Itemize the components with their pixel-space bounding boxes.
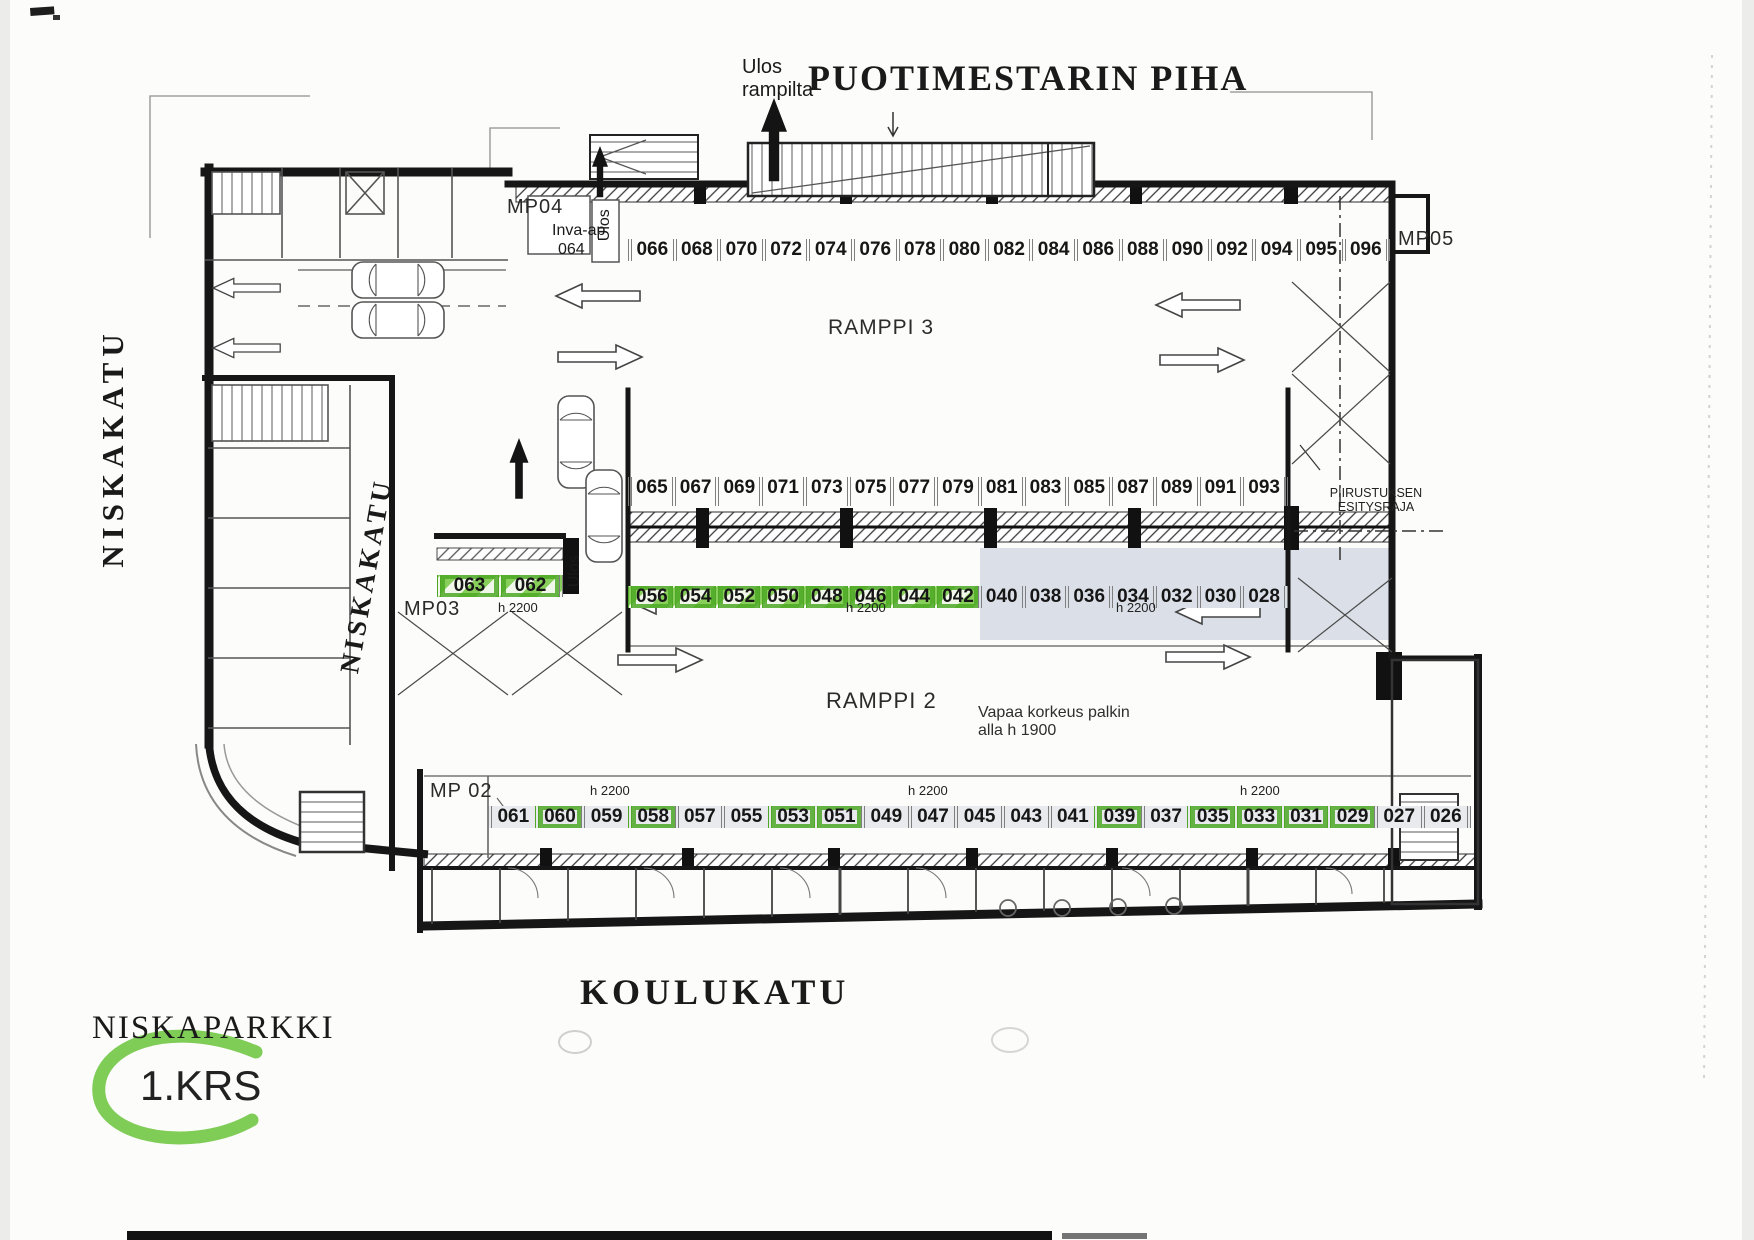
- parking-spot-072: 072: [762, 239, 807, 261]
- parking-spot-number: 055: [731, 806, 763, 828]
- parking-spot-051: 051: [814, 806, 861, 828]
- parking-spot-number: 071: [767, 477, 799, 499]
- parking-spot-number: 082: [993, 239, 1025, 261]
- parking-spot-number: 068: [681, 239, 713, 261]
- parking-floor-plan: PUOTIMESTARIN PIHA Ulos rampilta NISKAKA…: [0, 0, 1754, 1240]
- parking-spot-054: 054: [672, 586, 716, 608]
- height-note-6: h 2200: [1240, 784, 1280, 799]
- ulos-mid-label: Ulos: [566, 548, 584, 594]
- parking-spot-number: 094: [1261, 239, 1293, 261]
- parking-spot-number: 087: [1117, 477, 1149, 499]
- parking-spot-085: 085: [1065, 477, 1109, 506]
- parking-spot-077: 077: [890, 477, 934, 506]
- parking-spot-number: 069: [723, 477, 755, 499]
- parking-spot-074: 074: [806, 239, 851, 261]
- clearance-note-line2: alla h 1900: [978, 722, 1130, 740]
- street-bottom: KOULUKATU: [580, 972, 849, 1013]
- parking-row-bottom: 0610600590580570550530510490470450430410…: [488, 776, 1471, 858]
- parking-spot-061: 061: [488, 806, 535, 828]
- parking-spot-063: 063: [437, 575, 498, 597]
- parking-spot-number: 047: [917, 806, 949, 828]
- parking-spot-number: 081: [986, 477, 1018, 499]
- parking-spot-041: 041: [1048, 806, 1095, 828]
- parking-spot-number: 057: [684, 806, 716, 828]
- parking-spot-067: 067: [672, 477, 716, 506]
- parking-spot-number: 085: [1073, 477, 1105, 499]
- height-note-3: h 2200: [1116, 601, 1156, 616]
- parking-spot-030: 030: [1197, 586, 1241, 608]
- parking-spot-number: 035: [1197, 806, 1229, 828]
- parking-spot-075: 075: [847, 477, 891, 506]
- boundary-note-line1: PIIRUSTUKSEN: [1302, 486, 1450, 500]
- parking-spot-number: 077: [898, 477, 930, 499]
- parking-spot-number: 095: [1305, 239, 1337, 261]
- parking-spot-076: 076: [851, 239, 896, 261]
- parking-spot-029: 029: [1327, 806, 1374, 828]
- parking-spot-number: 031: [1290, 806, 1322, 828]
- parking-spot-049: 049: [861, 806, 908, 828]
- parking-spot-044: 044: [890, 586, 934, 608]
- parking-spot-066: 066: [628, 239, 673, 261]
- parking-spot-number: 092: [1216, 239, 1248, 261]
- parking-spot-095: 095: [1297, 239, 1342, 261]
- parking-spot-070: 070: [717, 239, 762, 261]
- parking-spot-number: 041: [1057, 806, 1089, 828]
- street-left: NISKAKATU: [95, 298, 131, 598]
- parking-spot-031: 031: [1281, 806, 1328, 828]
- parking-spot-number: 048: [811, 586, 843, 608]
- boundary-note: PIIRUSTUKSEN ESITYSRAJA: [1302, 486, 1450, 515]
- parking-spot-071: 071: [759, 477, 803, 506]
- parking-spot-026: 026: [1421, 806, 1472, 828]
- logo-name: NISKAPARKKI: [92, 1010, 335, 1048]
- parking-spot-number: 073: [811, 477, 843, 499]
- parking-spot-059: 059: [581, 806, 628, 828]
- parking-spot-058: 058: [628, 806, 675, 828]
- logo-floor: 1.KRS: [140, 1062, 261, 1110]
- parking-spot-027: 027: [1374, 806, 1421, 828]
- entry-mp02: MP 02: [430, 780, 492, 803]
- parking-spot-094: 094: [1252, 239, 1297, 261]
- parking-row-middle: 0650670690710730750770790810830850870890…: [628, 394, 1288, 506]
- parking-spot-number: 033: [1243, 806, 1275, 828]
- parking-spot-073: 073: [803, 477, 847, 506]
- parking-spot-number: 076: [859, 239, 891, 261]
- parking-spot-number: 037: [1150, 806, 1182, 828]
- parking-spot-number: 063: [454, 575, 486, 597]
- parking-spot-057: 057: [675, 806, 722, 828]
- parking-spot-037: 037: [1141, 806, 1188, 828]
- parking-spot-060: 060: [535, 806, 582, 828]
- parking-spot-096: 096: [1342, 239, 1391, 261]
- parking-spot-069: 069: [715, 477, 759, 506]
- parking-spot-number: 083: [1030, 477, 1062, 499]
- parking-spot-number: 044: [898, 586, 930, 608]
- parking-spot-035: 035: [1187, 806, 1234, 828]
- parking-spot-028: 028: [1240, 586, 1288, 608]
- ulos-top-label: Ulos: [596, 203, 614, 247]
- parking-spot-088: 088: [1119, 239, 1164, 261]
- parking-spot-042: 042: [934, 586, 978, 608]
- parking-spot-083: 083: [1022, 477, 1066, 506]
- parking-spot-number: 038: [1030, 586, 1062, 608]
- parking-spot-number: 072: [770, 239, 802, 261]
- clearance-note: Vapaa korkeus palkin alla h 1900: [978, 704, 1130, 741]
- parking-spot-065: 065: [628, 477, 672, 506]
- parking-spot-045: 045: [954, 806, 1001, 828]
- parking-spot-number: 078: [904, 239, 936, 261]
- parking-spot-number: 067: [680, 477, 712, 499]
- exit-ramp-note: Ulos rampilta: [742, 56, 813, 102]
- parking-spot-050: 050: [759, 586, 803, 608]
- parking-spot-082: 082: [985, 239, 1030, 261]
- parking-spot-number: 084: [1038, 239, 1070, 261]
- parking-spot-038: 038: [1022, 586, 1066, 608]
- parking-spot-number: 074: [815, 239, 847, 261]
- parking-spot-047: 047: [908, 806, 955, 828]
- parking-spot-number: 060: [544, 806, 576, 828]
- parking-row-top: 0660680700720740760780800820840860880900…: [628, 202, 1390, 298]
- exit-ramp-note-line1: Ulos: [742, 56, 813, 79]
- parking-spot-086: 086: [1074, 239, 1119, 261]
- parking-spot-number: 090: [1172, 239, 1204, 261]
- parking-spot-number: 050: [767, 586, 799, 608]
- parking-spot-039: 039: [1094, 806, 1141, 828]
- parking-spot-number: 026: [1430, 806, 1462, 828]
- parking-spot-080: 080: [940, 239, 985, 261]
- parking-spot-number: 043: [1010, 806, 1042, 828]
- parking-spot-number: 062: [515, 575, 547, 597]
- clearance-note-line1: Vapaa korkeus palkin: [978, 704, 1130, 722]
- parking-spot-number: 039: [1104, 806, 1136, 828]
- parking-spot-055: 055: [721, 806, 768, 828]
- ramp-2-label: RAMPPI 2: [826, 688, 937, 713]
- parking-spot-087: 087: [1109, 477, 1153, 506]
- parking-spot-number: 091: [1205, 477, 1237, 499]
- parking-spot-number: 045: [964, 806, 996, 828]
- parking-spot-091: 091: [1197, 477, 1241, 506]
- parking-spot-number: 093: [1248, 477, 1280, 499]
- parking-spot-084: 084: [1029, 239, 1074, 261]
- height-note-1: h 2200: [498, 601, 538, 616]
- parking-spot-090: 090: [1163, 239, 1208, 261]
- parking-spot-052: 052: [715, 586, 759, 608]
- parking-spot-number: 027: [1383, 806, 1415, 828]
- parking-spot-number: 058: [637, 806, 669, 828]
- parking-spot-068: 068: [673, 239, 718, 261]
- parking-spot-number: 088: [1127, 239, 1159, 261]
- parking-spot-number: 042: [942, 586, 974, 608]
- height-note-4: h 2200: [590, 784, 630, 799]
- parking-spot-092: 092: [1208, 239, 1253, 261]
- parking-spot-number: 029: [1337, 806, 1369, 828]
- parking-spot-number: 040: [986, 586, 1018, 608]
- parking-spot-number: 028: [1248, 586, 1280, 608]
- parking-spot-number: 051: [824, 806, 856, 828]
- parking-spot-number: 089: [1161, 477, 1193, 499]
- height-note-5: h 2200: [908, 784, 948, 799]
- parking-spot-number: 061: [497, 806, 529, 828]
- parking-spot-number: 032: [1161, 586, 1193, 608]
- parking-spot-number: 052: [723, 586, 755, 608]
- parking-spot-033: 033: [1234, 806, 1281, 828]
- parking-spot-081: 081: [978, 477, 1022, 506]
- parking-spot-093: 093: [1240, 477, 1288, 506]
- parking-spot-number: 054: [680, 586, 712, 608]
- parking-spot-053: 053: [768, 806, 815, 828]
- boundary-note-line2: ESITYSRAJA: [1302, 500, 1450, 514]
- parking-spot-number: 053: [777, 806, 809, 828]
- parking-spot-number: 070: [726, 239, 758, 261]
- parking-row-third: 0560540520500480460440420400380360340320…: [628, 548, 1288, 645]
- parking-spot-062: 062: [498, 575, 563, 597]
- parking-spot-number: 086: [1082, 239, 1114, 261]
- parking-spot-number: 075: [855, 477, 887, 499]
- parking-spot-number: 080: [949, 239, 981, 261]
- parking-spot-number: 079: [942, 477, 974, 499]
- parking-spot-079: 079: [934, 477, 978, 506]
- parking-spot-number: 065: [636, 477, 668, 499]
- parking-spot-number: 049: [870, 806, 902, 828]
- ramp-3-label: RAMPPI 3: [828, 316, 934, 340]
- parking-spot-089: 089: [1153, 477, 1197, 506]
- exit-ramp-note-line2: rampilta: [742, 79, 813, 102]
- height-note-2: h 2200: [846, 601, 886, 616]
- parking-spot-032: 032: [1153, 586, 1197, 608]
- page-title: PUOTIMESTARIN PIHA: [808, 58, 1248, 99]
- entry-mp05: MP05: [1398, 228, 1454, 251]
- parking-spot-number: 096: [1350, 239, 1382, 261]
- parking-spot-number: 066: [636, 239, 668, 261]
- parking-spot-number: 036: [1073, 586, 1105, 608]
- parking-spot-078: 078: [896, 239, 941, 261]
- parking-spot-048: 048: [803, 586, 847, 608]
- entry-mp03: MP03: [404, 598, 460, 621]
- inva-spot-number: 064: [558, 241, 585, 259]
- parking-spot-number: 056: [636, 586, 668, 608]
- parking-spot-056: 056: [628, 586, 672, 608]
- parking-spot-040: 040: [978, 586, 1022, 608]
- parking-spot-number: 059: [591, 806, 623, 828]
- parking-spot-036: 036: [1065, 586, 1109, 608]
- entry-mp04: MP04: [507, 196, 563, 219]
- parking-spot-number: 030: [1205, 586, 1237, 608]
- parking-spot-043: 043: [1001, 806, 1048, 828]
